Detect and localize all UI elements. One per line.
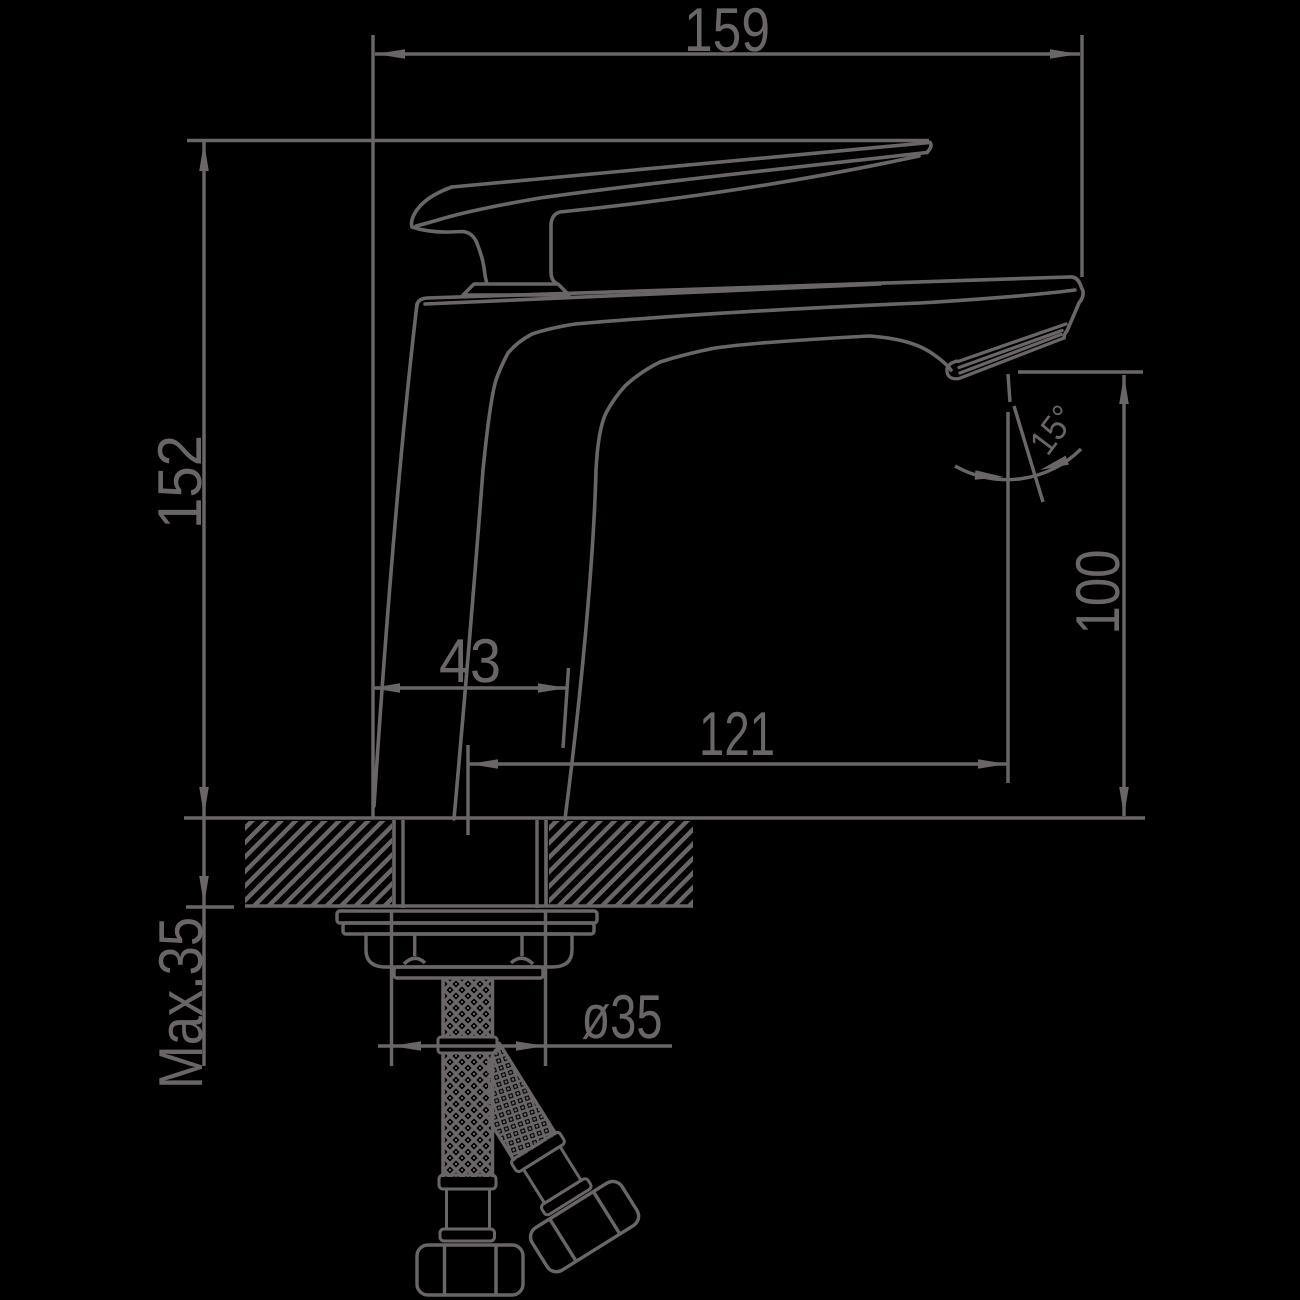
svg-text:159: 159 [684,0,770,65]
svg-text:Max.35: Max.35 [147,917,216,1089]
svg-text:ø35: ø35 [582,983,663,1052]
svg-text:152: 152 [146,435,215,529]
svg-text:121: 121 [699,700,775,769]
svg-text:100: 100 [1064,550,1133,635]
svg-text:43: 43 [439,627,501,696]
